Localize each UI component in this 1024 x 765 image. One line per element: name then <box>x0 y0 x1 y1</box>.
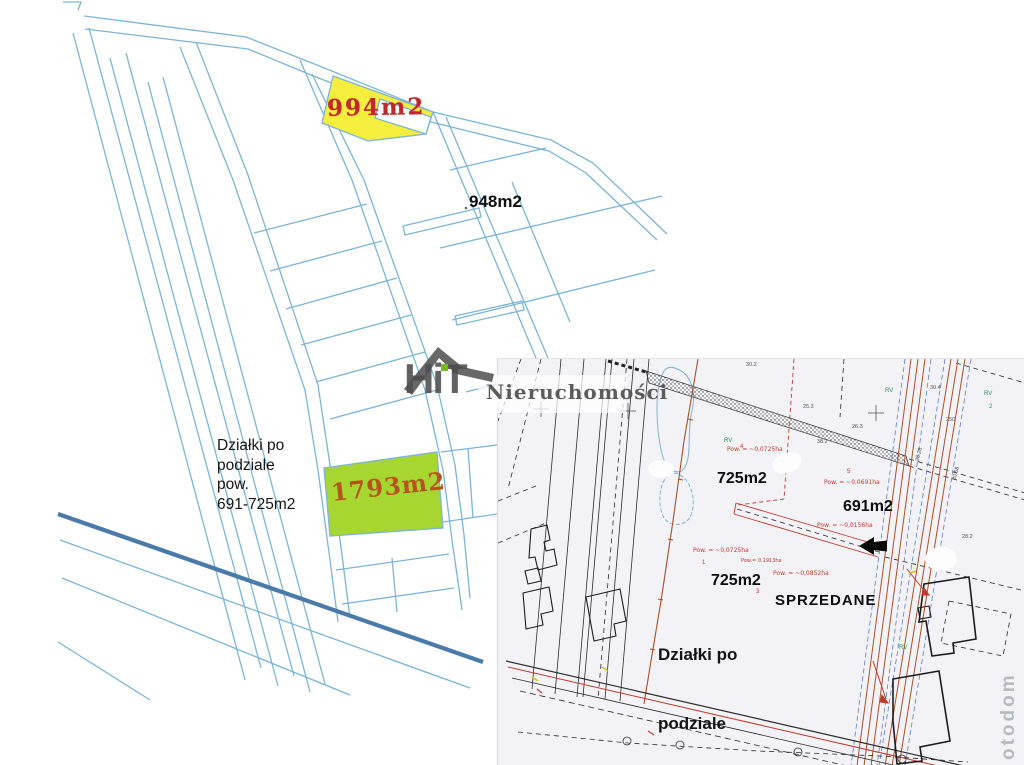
note-line: podziale <box>658 712 807 735</box>
plot-number: 5 <box>847 469 850 475</box>
pow-note: Pow. = ~0,0691ha <box>824 480 880 486</box>
soil-label: RV <box>724 438 732 444</box>
pow-note: Pow. = ~0,0852ha <box>773 571 829 577</box>
subdivision-note-right: Działki po podziale pow. 691 - 725m2 <box>658 597 807 765</box>
area-label-725-bottom: 725m2 <box>711 573 761 589</box>
plot-number: 3 <box>756 589 759 595</box>
soil-label: RV <box>984 391 992 397</box>
note-line: Działki po <box>217 436 295 456</box>
area-label-691: 691m2 <box>843 499 893 515</box>
pow-note: Pow. = ~0,0156ha <box>817 523 873 529</box>
portal-watermark: otodom <box>998 672 1020 760</box>
subdivision-note-left: Działki po podziale pow. 691-725m2 <box>217 436 295 514</box>
measure-label: 30.4 <box>930 386 941 392</box>
soil-label: RV <box>899 645 907 651</box>
house-roof-icon <box>398 337 498 397</box>
measure-label: 25.3 <box>803 405 814 411</box>
pow-note: Pow. = ~0,0725ha <box>727 447 783 453</box>
pow-note: Pow. = ~0,0725ha <box>693 548 749 554</box>
note-line: 691-725m2 <box>217 495 295 515</box>
agency-logo: HiT Nieruchomości <box>398 343 630 417</box>
soil-label: 2 <box>989 404 992 410</box>
logo-i-dot <box>441 364 448 371</box>
parcel-948-label: 948m2 <box>469 193 522 210</box>
measure-label: 30.2 <box>746 363 757 369</box>
plot-number: 1 <box>702 560 705 566</box>
measure-label: 28.2 <box>962 535 973 541</box>
measure-label: 38.2 <box>817 440 828 446</box>
area-label-725-top: 725m2 <box>717 471 767 487</box>
measure-label: 26.3 <box>852 425 863 431</box>
note-line: Działki po <box>658 643 807 666</box>
pow-note: Pow.= 0,1913ha <box>741 559 782 564</box>
cadastral-scan-map: 725m2 691m2 725m2 SPRZEDANE Działki po p… <box>497 358 1024 765</box>
agency-logo-subtitle: Nieruchomości <box>486 380 668 404</box>
listing-image: 994m2 948m2 1793m2 Działki po podziale p… <box>0 0 1024 765</box>
soil-label: RV <box>885 388 893 394</box>
note-line: pow. <box>217 475 295 495</box>
plot-number: 4 <box>740 444 743 450</box>
measure-label: 250 <box>946 418 955 424</box>
parcel-994-label: 994m2 <box>327 95 426 120</box>
note-line: podziale <box>217 456 295 476</box>
